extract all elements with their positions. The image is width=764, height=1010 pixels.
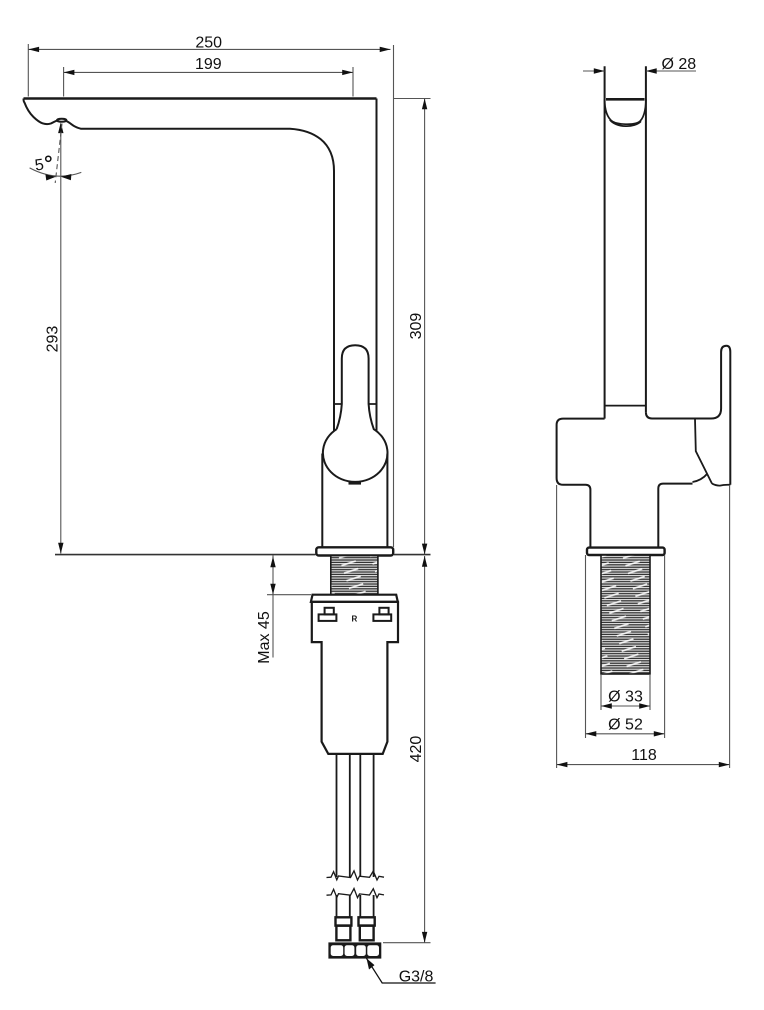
- svg-text:293: 293: [45, 326, 62, 353]
- svg-text:420: 420: [408, 736, 425, 763]
- svg-text:Max 45: Max 45: [256, 611, 273, 664]
- svg-text:309: 309: [408, 313, 425, 340]
- svg-text:5: 5: [34, 156, 45, 174]
- svg-text:R: R: [352, 615, 358, 624]
- svg-text:Ø 52: Ø 52: [608, 717, 643, 734]
- svg-text:250: 250: [195, 35, 222, 52]
- svg-text:Ø 28: Ø 28: [662, 56, 697, 73]
- svg-text:118: 118: [631, 747, 657, 764]
- svg-text:199: 199: [195, 56, 222, 73]
- svg-text:Ø 33: Ø 33: [608, 689, 643, 706]
- svg-text:G3/8: G3/8: [399, 969, 434, 986]
